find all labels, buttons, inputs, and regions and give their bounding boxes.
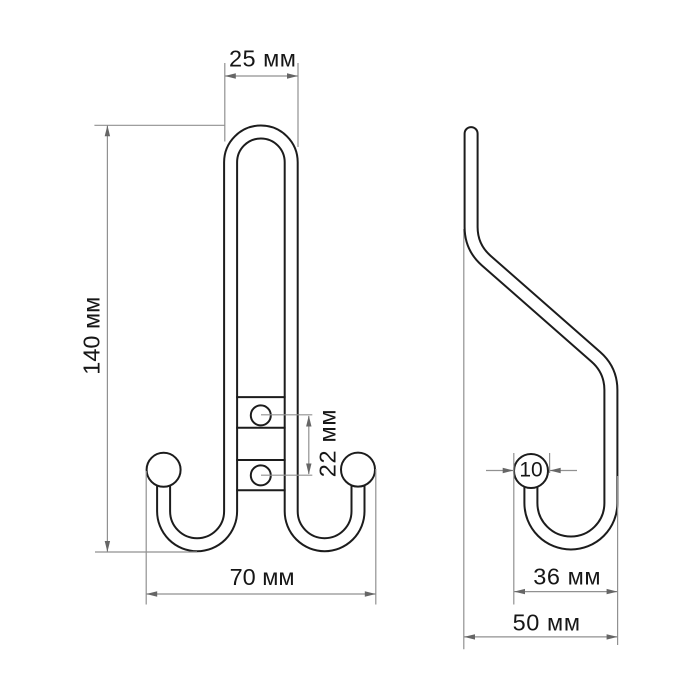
- svg-text:70 мм: 70 мм: [230, 564, 295, 590]
- svg-text:25 мм: 25 мм: [229, 46, 296, 72]
- svg-text:140 мм: 140 мм: [79, 297, 105, 375]
- svg-text:10: 10: [519, 459, 542, 482]
- svg-text:22 мм: 22 мм: [315, 409, 341, 477]
- svg-text:36 мм: 36 мм: [533, 564, 601, 590]
- svg-text:50 мм: 50 мм: [513, 609, 581, 635]
